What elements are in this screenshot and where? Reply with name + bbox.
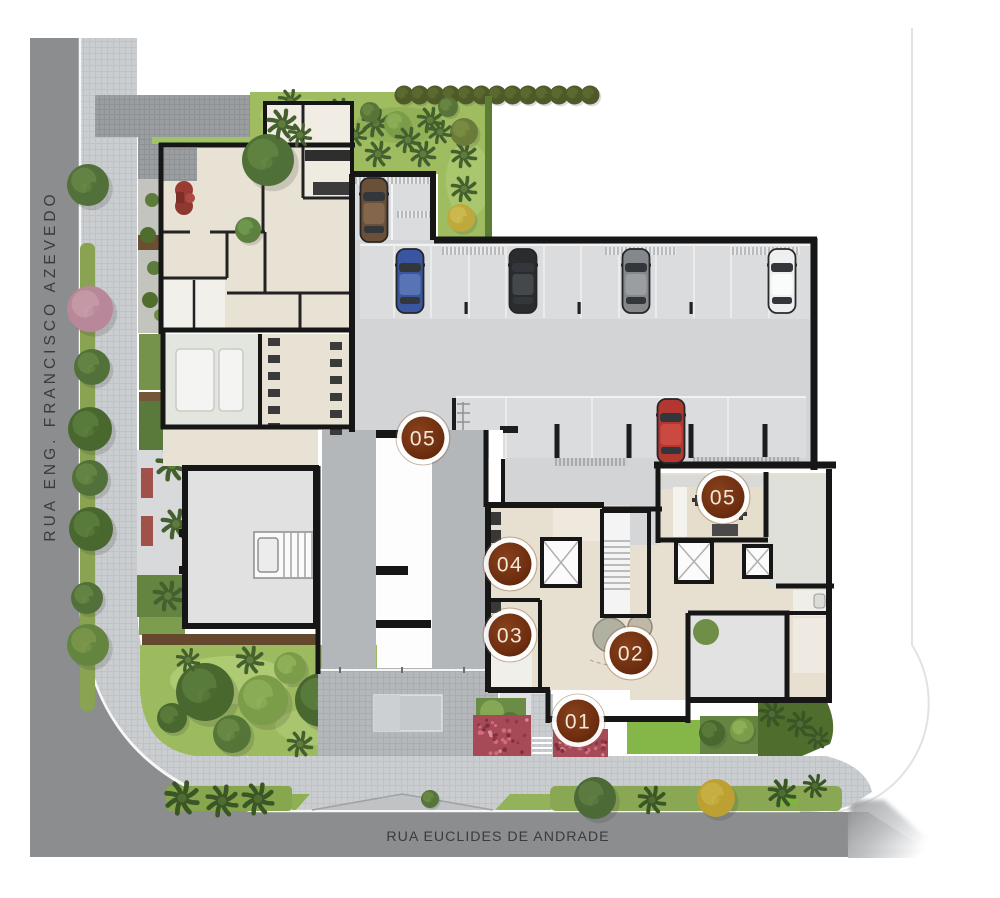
svg-text:01: 01 <box>565 711 591 734</box>
svg-text:03: 03 <box>497 625 523 648</box>
svg-text:02: 02 <box>618 643 644 666</box>
svg-text:04: 04 <box>497 554 523 577</box>
svg-text:RUA EUCLIDES DE ANDRADE: RUA EUCLIDES DE ANDRADE <box>386 829 609 845</box>
svg-text:05: 05 <box>710 487 736 510</box>
svg-text:05: 05 <box>410 428 436 451</box>
svg-text:RUA ENG. FRANCISCO AZEVEDO: RUA ENG. FRANCISCO AZEVEDO <box>42 190 59 541</box>
